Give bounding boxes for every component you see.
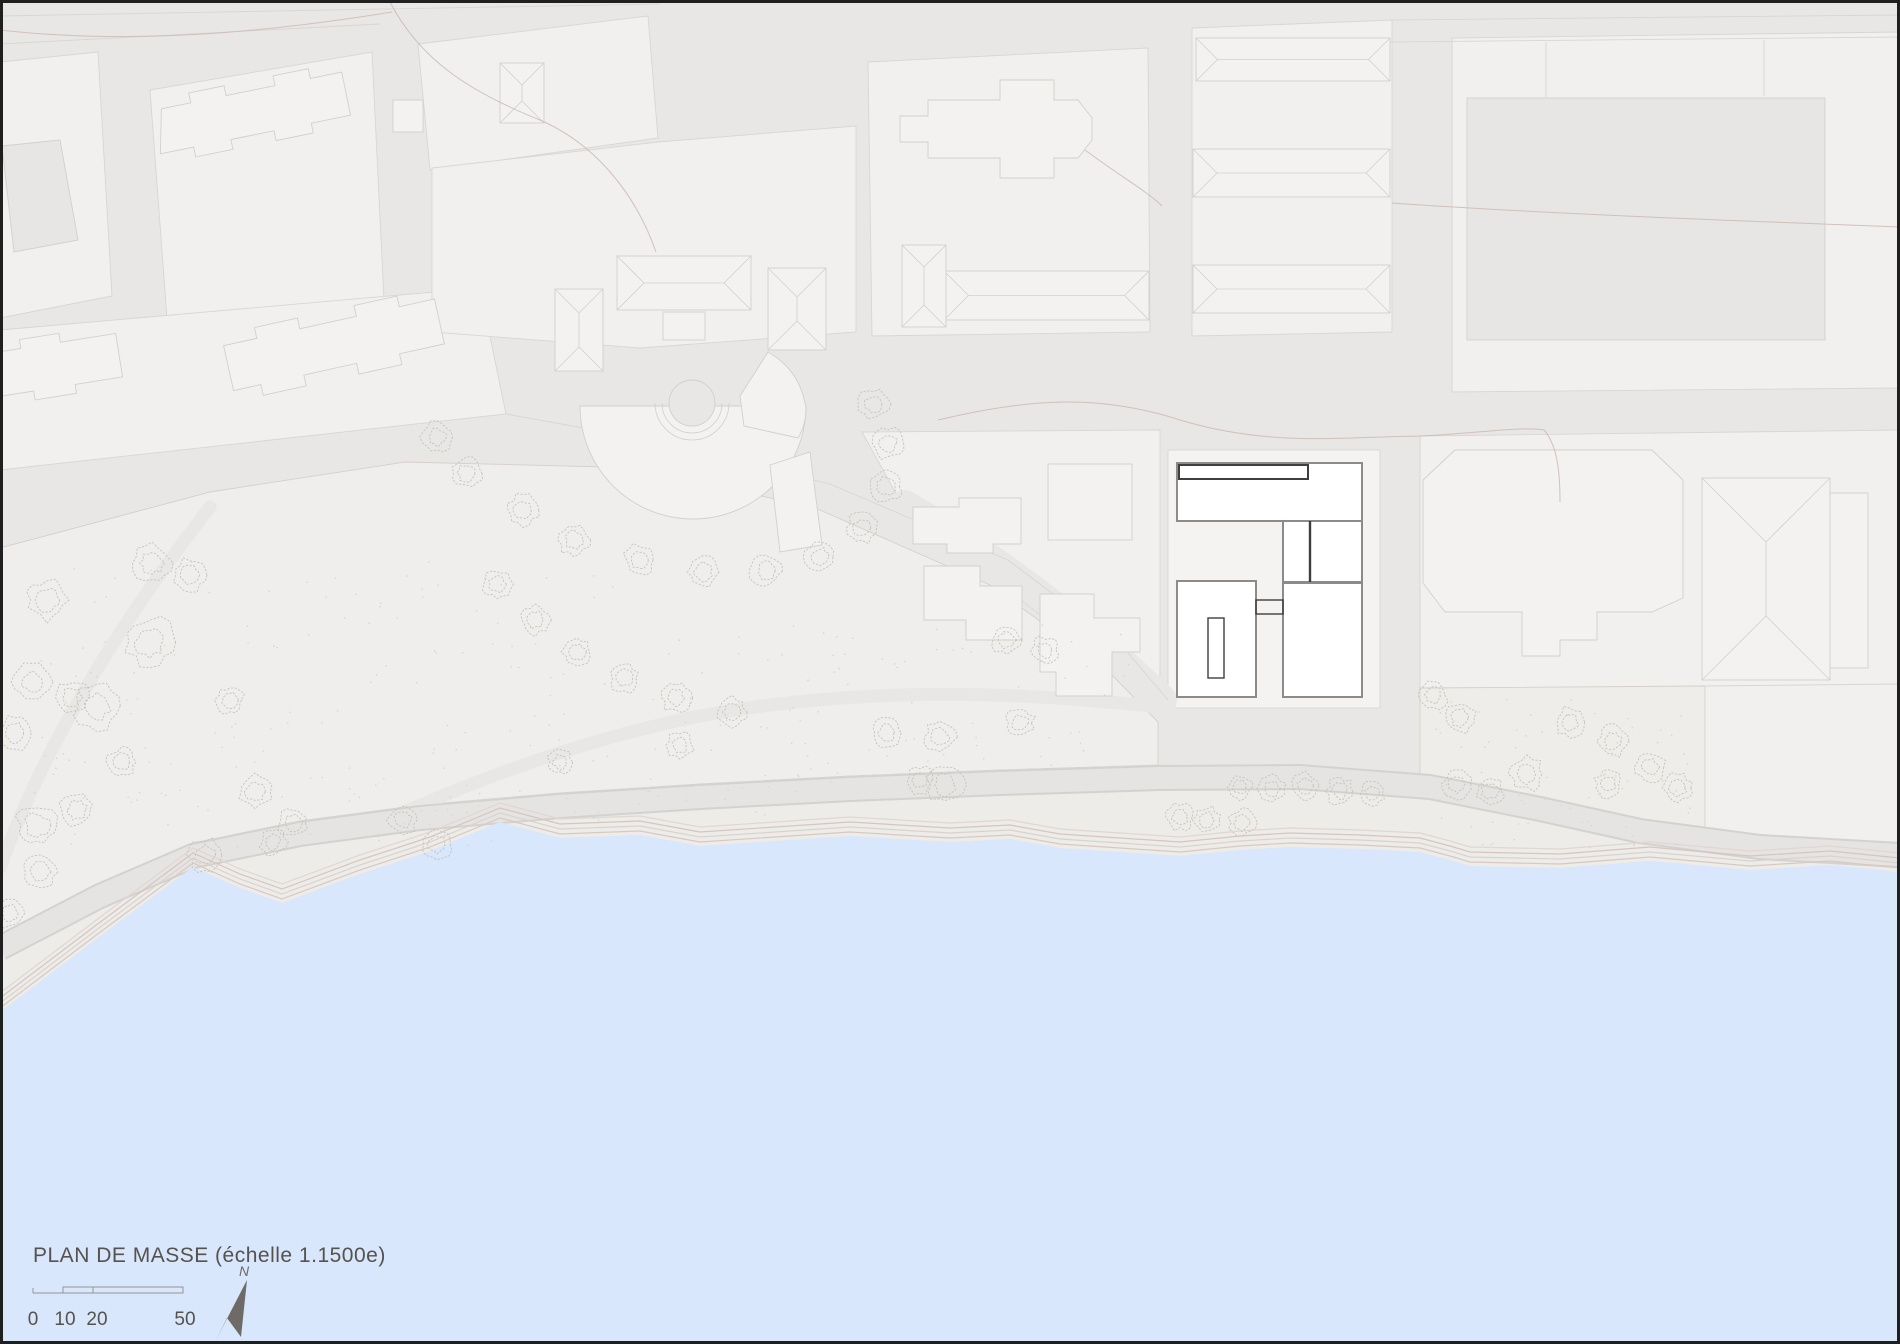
sand-dot [466,812,468,814]
sand-dot [462,652,464,654]
sand-dot [1662,780,1664,782]
sand-dot [799,720,801,722]
sand-dot [1123,676,1125,678]
sand-dot [797,774,799,776]
kiosk-building [393,100,423,132]
sand-dot [649,791,651,793]
sand-dot [1603,775,1605,777]
sand-dot [160,648,162,650]
sand-dot [1546,777,1548,779]
sand-dot [134,672,136,674]
sand-dot [56,758,58,760]
sand-dot [1675,843,1677,845]
sand-dot [1120,634,1122,636]
sand-dot [41,660,43,662]
sand-dot [1570,699,1572,701]
sand-dot [1588,797,1590,799]
sand-dot [1071,641,1073,643]
sand-dot [726,720,728,722]
sand-dot [287,722,289,724]
sand-dot [1657,742,1659,744]
sand-dot [1506,699,1508,701]
sand-dot [613,814,615,816]
sand-dot [165,794,167,796]
sand-dot [161,793,163,795]
sand-dot [467,845,469,847]
amphitheatre-center-circle [669,380,715,426]
sand-dot [105,641,107,643]
sand-dot [886,755,888,757]
sand-dot [1560,805,1562,807]
sand-dot [1042,624,1044,626]
sand-dot [1492,843,1494,845]
sand-dot [827,763,829,765]
sand-dot [1445,794,1447,796]
sand-dot [1683,753,1685,755]
sand-dot [1567,714,1569,716]
sand-dot [276,647,278,649]
sand-dot [221,747,223,749]
sand-dot [131,802,133,804]
sand-dot [1451,701,1453,703]
sand-dot [1627,718,1629,720]
sand-dot [148,761,150,763]
sand-dot [1086,666,1088,668]
sand-dot [1461,746,1463,748]
sand-dot [96,676,98,678]
sand-dot [685,722,687,724]
sand-dot [1688,812,1690,814]
sand-dot [1446,784,1448,786]
sand-dot [66,702,68,704]
sand-dot [638,803,640,805]
sand-dot [378,836,380,838]
scale-label-10: 10 [54,1309,75,1330]
sand-dot [896,667,898,669]
sand-dot [936,629,938,631]
scale-label-50: 50 [174,1309,195,1330]
sand-dot [233,737,235,739]
sand-dot [823,632,825,634]
sand-dot [370,682,372,684]
sand-dot [502,798,504,800]
sand-dot [191,561,193,563]
sand-dot [308,634,310,636]
sand-dot [1618,837,1620,839]
sand-dot [207,809,209,811]
sand-dot [818,711,820,713]
sand-dot [197,806,199,808]
hip-roof-building [555,289,603,371]
sand-dot [592,760,594,762]
sand-dot [243,694,245,696]
sand-dot [511,646,513,648]
sand-dot [70,843,72,845]
sand-dot [478,805,480,807]
sand-dot [738,653,740,655]
sand-dot [1530,714,1532,716]
sand-dot [668,653,670,655]
sand-dot [1484,746,1486,748]
sand-dot [466,785,468,787]
sand-dot [34,792,36,794]
sand-dot [1594,713,1596,715]
sand-dot [755,811,757,813]
sand-dot [334,578,336,580]
sand-dot [1611,755,1613,757]
sand-dot [465,732,467,734]
sand-dot [500,584,502,586]
sand-dot [137,698,139,700]
sand-dot [927,760,929,762]
sand-dot [1036,645,1038,647]
sand-dot [1128,664,1130,666]
sand-dot [421,588,423,590]
sand-dot [67,809,69,811]
plan-title: PLAN DE MASSE (échelle 1.1500e) [33,1244,386,1267]
sand-dot [1439,799,1441,801]
sand-dot [1622,788,1624,790]
sand-dot [476,610,478,612]
sand-dot [1003,633,1005,635]
sand-dot [451,814,453,816]
sand-dot [550,677,552,679]
sand-dot [380,602,382,604]
sand-dot [432,752,434,754]
sand-dot [136,799,138,801]
sand-dot [738,636,740,638]
sand-dot [566,798,568,800]
sand-dot [484,578,486,580]
sand-dot [455,749,457,751]
sand-dot [179,790,181,792]
square-building [1048,464,1132,540]
sand-dot [497,622,499,624]
sand-dot [407,575,409,577]
sand-dot [231,726,233,728]
sand-dot [1518,823,1520,825]
sand-dot [559,765,561,767]
sand-dot [214,732,216,734]
sand-dot [943,754,945,756]
sand-dot [1454,720,1456,722]
sand-dot [55,767,57,769]
sand-dot [1660,730,1662,732]
sand-dot [1471,826,1473,828]
project-west-block [1177,581,1256,697]
sand-dot [975,737,977,739]
sand-dot [139,792,141,794]
sand-dot [518,667,520,669]
sand-dot [546,577,548,579]
sand-dot [767,786,769,788]
sand-dot [322,777,324,779]
sand-dot [1488,741,1490,743]
sand-dot [598,819,600,821]
sand-dot [359,797,361,799]
sand-dot [479,793,481,795]
sand-dot [1441,818,1443,820]
sand-dot [791,743,793,745]
sand-dot [604,683,606,685]
sand-dot [1521,800,1523,802]
sand-dot [1617,742,1619,744]
sand-dot [130,713,132,715]
sand-dot [1018,686,1020,688]
sand-dot [1527,823,1529,825]
sand-dot [911,702,913,704]
hip-roof-building [500,63,544,123]
sand-dot [711,750,713,752]
hip-roof-building [1193,149,1390,197]
sand-dot [551,819,553,821]
sand-dot [563,714,565,716]
sand-dot [289,712,291,714]
sand-dot [983,758,985,760]
sand-dot [1687,764,1689,766]
sand-dot [145,747,147,749]
sand-dot [50,663,52,665]
sand-dot [1524,803,1526,805]
sand-dot [504,821,506,823]
sand-dot [647,791,649,793]
sand-dot [905,740,907,742]
sand-dot [62,753,64,755]
project-top-bar-strip [1179,465,1308,479]
sand-dot [1049,660,1051,662]
sand-dot [209,592,211,594]
sand-dot [962,648,964,650]
sand-dot [53,773,55,775]
sand-dot [833,671,835,673]
sand-dot [435,652,437,654]
hip-roof-building [1196,38,1390,81]
sand-dot [1671,734,1673,736]
sand-dot [368,622,370,624]
sand-dot [724,799,726,801]
sand-dot [83,797,85,799]
sand-dot [105,596,107,598]
sand-dot [434,650,436,652]
sand-dot [894,663,896,665]
large-hall-roof [1467,98,1825,340]
sand-dot [75,676,77,678]
sand-dot [376,674,378,676]
sand-dot [519,790,521,792]
sand-dot [167,824,169,826]
sand-dot [68,759,70,761]
sand-dot [447,725,449,727]
sand-dot [1492,821,1494,823]
sand-dot [764,814,766,816]
sand-dot [535,643,537,645]
sand-dot [767,804,769,806]
sand-dot [90,672,92,674]
sand-dot [534,715,536,717]
sand-dot [1676,790,1678,792]
sand-dot [836,636,838,638]
sand-dot [436,810,438,812]
sand-dot [428,561,430,563]
sand-dot [375,784,377,786]
sand-dot [492,643,494,645]
sand-dot [679,639,681,641]
sand-dot [612,586,614,588]
sand-dot [882,658,884,660]
sand-dot [1440,732,1442,734]
sand-dot [1604,773,1606,775]
sand-dot [924,773,926,775]
sand-dot [438,584,440,586]
sand-dot [1104,694,1106,696]
sand-dot [1615,775,1617,777]
scale-label-20: 20 [86,1309,107,1330]
hip-roof-building [768,268,826,350]
sand-dot [1042,660,1044,662]
sand-dot [396,617,398,619]
sand-dot [1440,712,1442,714]
sand-dot [914,738,916,740]
sand-dot [549,724,551,726]
sand-dot [1051,765,1053,767]
sand-dot [174,654,176,656]
pavilion-building [663,312,705,340]
sand-dot [1544,799,1546,801]
sand-dot [247,642,249,644]
sand-dot [447,809,449,811]
sand-dot [1038,636,1040,638]
sand-dot [847,684,849,686]
sand-dot [126,699,128,701]
sand-dot [728,789,730,791]
sand-dot [205,845,207,847]
sand-dot [383,778,385,780]
sand-dot [321,722,323,724]
sand-dot [404,823,406,825]
sand-dot [511,666,513,668]
sand-dot [270,728,272,730]
north-label: N [239,1263,250,1279]
sand-dot [650,779,652,781]
sand-dot [1079,731,1081,733]
sand-dot [904,661,906,663]
sand-dot [558,739,560,741]
sand-dot [953,650,955,652]
sand-dot [662,820,664,822]
sand-dot [971,652,973,654]
sand-dot [1633,844,1635,846]
sand-dot [593,817,595,819]
sand-dot [1070,732,1072,734]
sand-dot [150,570,152,572]
sand-dot [236,766,238,768]
sand-dot [326,596,328,598]
sand-dot [1689,807,1691,809]
sand-dot [1490,844,1492,846]
sand-dot [355,594,357,596]
sand-dot [173,638,175,640]
sand-dot [450,796,452,798]
sand-dot [741,787,743,789]
sand-dot [563,673,565,675]
sand-dot [235,723,237,725]
sand-dot [657,795,659,797]
sand-dot [1581,822,1583,824]
sand-dot [281,796,283,798]
sand-dot [310,833,312,835]
sand-dot [270,789,272,791]
sand-dot [690,698,692,700]
sand-dot [869,749,871,751]
sand-dot [94,601,96,603]
sand-dot [1010,650,1012,652]
sand-dot [653,699,655,701]
sand-dot [84,761,86,763]
sand-dot [273,645,275,647]
sand-dot [132,764,134,766]
sand-dot [114,577,116,579]
sand-dot [268,590,270,592]
sand-dot [247,626,249,628]
sand-dot [262,750,264,752]
sand-dot [767,727,769,729]
sand-dot [530,745,532,747]
sand-dot [781,654,783,656]
sand-dot [378,840,380,842]
sand-dot [516,822,518,824]
sand-dot [349,788,351,790]
sand-dot [1064,678,1066,680]
sand-dot [701,672,703,674]
sand-dot [792,707,794,709]
sand-dot [354,793,356,795]
hip-roof-building [1193,265,1390,313]
sand-dot [793,625,795,627]
hip-roof-building [617,256,751,310]
sand-dot [594,597,596,599]
sand-dot [607,756,609,758]
sand-dot [1632,836,1634,838]
sand-dot [82,647,84,649]
sand-dot [1083,750,1085,752]
sand-dot [654,748,656,750]
sand-dot [550,695,552,697]
sand-dot [170,764,172,766]
sand-dot [1049,737,1051,739]
sand-dot [832,655,834,657]
sand-dot [789,709,791,711]
sand-dot [1516,730,1518,732]
sand-dot [767,659,769,661]
sand-dot [306,582,308,584]
sand-dot [1627,780,1629,782]
sand-dot [42,737,44,739]
sand-dot [420,810,422,812]
sand-dot [1631,727,1633,729]
sand-dot [593,575,595,577]
sand-dot [1040,756,1042,758]
sand-dot [686,799,688,801]
sand-dot [852,637,854,639]
sand-dot [976,745,978,747]
sand-dot [1570,807,1572,809]
sand-dot [73,568,75,570]
sand-dot [349,767,351,769]
sand-dot [310,777,312,779]
sand-dot [830,781,832,783]
sand-dot [1481,772,1483,774]
sand-dot [444,829,446,831]
